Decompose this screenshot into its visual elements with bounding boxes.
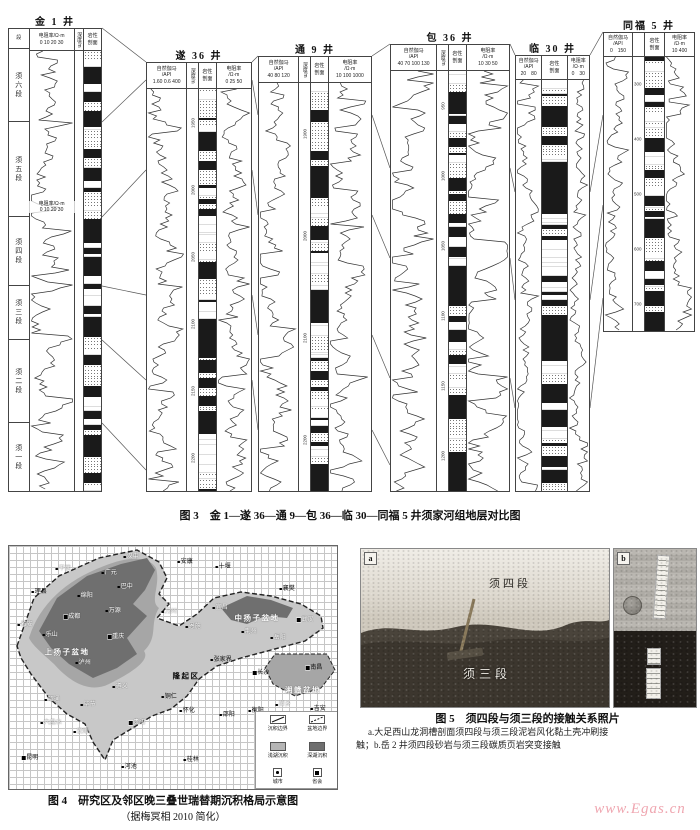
lith-segment xyxy=(84,118,101,127)
log-curve xyxy=(329,83,371,491)
lith-segment xyxy=(84,296,101,306)
well-jin1: 金 1 井 段 须六段 须五段 须四段 须三段 须二段 须一段 电阻率/Ω·m xyxy=(8,28,102,492)
lith-segment xyxy=(645,228,664,238)
lith-segment xyxy=(199,455,216,465)
lith-segment xyxy=(449,459,466,469)
map-label: 河池 xyxy=(121,764,137,770)
depth-label: 2150 xyxy=(190,385,195,395)
well-title: 金 1 井 xyxy=(0,13,111,28)
lith-segment xyxy=(84,234,101,243)
lith-segment xyxy=(449,227,466,237)
depth-label: 600 xyxy=(634,246,642,251)
lith-segment xyxy=(542,106,566,115)
depth-header: 深度/m xyxy=(187,63,198,89)
depth-label: 1050 xyxy=(440,241,445,251)
lith-segment xyxy=(449,259,466,266)
lith-segment xyxy=(199,302,216,312)
lith-segment xyxy=(199,188,216,196)
lith-segment xyxy=(542,446,566,456)
lith-segment xyxy=(542,196,566,204)
lithology-track: 岩性剖面 xyxy=(644,33,664,331)
lith-segment xyxy=(449,170,466,178)
lith-segment xyxy=(311,179,328,188)
member-row: 须四段 xyxy=(9,216,29,285)
depth-label: 1200 xyxy=(440,451,445,461)
lith-header: 岩性剖面 xyxy=(645,33,664,57)
depth-label: 2100 xyxy=(190,318,195,328)
lith-segment xyxy=(311,409,328,418)
map-label: 中扬子盆地 xyxy=(235,614,280,622)
city-marker xyxy=(279,588,282,591)
lith-segment xyxy=(84,219,101,229)
city-marker xyxy=(105,610,108,613)
lith-segment xyxy=(449,201,466,209)
lith-segment xyxy=(311,122,328,129)
lithology-track: 岩性剖面 xyxy=(541,56,566,491)
lith-segment xyxy=(311,134,328,141)
lithology-track: 岩性剖面 xyxy=(198,63,216,491)
map-legend: 沉积边界 盆地边界 浅湖沉积 深湖沉积 xyxy=(255,711,338,789)
legend-item: 盆地边界 xyxy=(307,715,327,732)
lithology-track: 岩性剖面 xyxy=(310,57,328,491)
log-curve xyxy=(665,57,693,331)
lith-segment xyxy=(645,63,664,72)
lith-segment xyxy=(84,102,101,109)
lith-segment xyxy=(542,431,566,439)
log-curve xyxy=(259,83,297,491)
lith-segment xyxy=(199,225,216,233)
member-header: 段 xyxy=(9,29,29,49)
depth-label: 1900 xyxy=(302,129,307,139)
lith-segment xyxy=(645,79,664,88)
lith-segment xyxy=(84,149,101,156)
lith-segment xyxy=(199,411,216,420)
city-marker xyxy=(183,759,186,762)
depth-label: 950 xyxy=(440,102,445,110)
resistivity-track: 电阻率/Ω·m0 25 50 xyxy=(216,63,251,491)
lith-segment xyxy=(645,261,664,271)
lith-segment xyxy=(84,76,101,84)
map-label: 南昌 xyxy=(306,665,323,671)
lith-segment xyxy=(645,187,664,196)
city-marker xyxy=(40,722,43,725)
log-curve xyxy=(604,57,630,331)
map-label: 理县 xyxy=(31,589,47,595)
capital-marker xyxy=(306,666,310,670)
lith-segment xyxy=(449,404,466,412)
depth-ticks: 195020002050210021502200 xyxy=(187,89,198,491)
capital-marker xyxy=(22,756,26,760)
lith-segment xyxy=(449,419,466,427)
lith-segment xyxy=(84,440,101,448)
lith-segment xyxy=(84,306,101,314)
depth-track: 深度/m 95010001050110011501200 xyxy=(436,45,448,491)
lith-segment xyxy=(84,377,101,386)
lith-segment xyxy=(645,178,664,187)
city-marker xyxy=(77,595,80,598)
depth-ticks: 1900200021002200 xyxy=(299,83,310,491)
city-marker xyxy=(101,572,104,575)
solid-boundary-symbol xyxy=(270,715,286,724)
lith-segment xyxy=(645,291,664,301)
lith-segment xyxy=(311,218,328,226)
lith-segment xyxy=(84,211,101,219)
lith-segment xyxy=(449,247,466,257)
resistivity-track: 电阻率/Ω·m 0 10 20 30 电阻率/Ω·m 0 10 20 30 xyxy=(29,29,74,491)
lith-segment xyxy=(199,445,216,455)
map-label: 恩施 xyxy=(185,624,201,630)
lith-segment xyxy=(199,329,216,338)
map-label: 桂林 xyxy=(183,757,199,763)
mid-scale-label: 电阻率/Ω·m 0 10 20 30 xyxy=(28,201,76,213)
track-header: 电阻率/Ω·m10 100 1000 xyxy=(329,57,371,83)
well-tongfu5: 同福 5 井 自然伽马/API0 150 300400500600700 岩性剖… xyxy=(603,32,695,332)
map-label: 湘赣盆地 xyxy=(285,686,321,694)
lith-segment xyxy=(542,410,566,419)
lith-segment xyxy=(84,448,101,457)
resistivity-track: 电阻率/Ω·m10 30 50 xyxy=(466,45,509,491)
lith-segment xyxy=(84,386,101,393)
lith-segment xyxy=(449,275,466,284)
lith-segment xyxy=(645,312,664,322)
lith-segment xyxy=(311,326,328,336)
lith-segment xyxy=(449,284,466,292)
city-marker xyxy=(17,624,20,627)
figure5-note-line1: a.大足西山龙洞槽剖面须四段与须三段泥岩风化黏土壳冲刷接 xyxy=(368,726,698,739)
lith-segment xyxy=(84,355,101,365)
lith-segment xyxy=(199,366,216,373)
gamma-track: 自然伽马/API20 80 xyxy=(516,56,541,491)
depth-track: 深度/m 1900200021002200 xyxy=(298,57,310,491)
deep-lake-swatch xyxy=(309,742,325,751)
track-header: 自然伽马/API1.60 0.6 400 xyxy=(147,63,186,89)
lithology-column xyxy=(84,51,101,491)
lith-segment xyxy=(311,83,328,92)
lith-segment xyxy=(449,138,466,147)
lith-segment xyxy=(84,337,101,347)
lith-segment xyxy=(199,465,216,473)
lith-segment xyxy=(311,474,328,483)
shallow-lake-swatch xyxy=(270,742,286,751)
lith-segment xyxy=(542,204,566,214)
lith-segment xyxy=(542,229,566,236)
lith-segment xyxy=(542,343,566,352)
city-marker xyxy=(161,611,164,614)
gamma-track: 自然伽马/API40 70 100 130 xyxy=(391,45,436,491)
lith-header: 岩性剖面 xyxy=(449,45,466,71)
depth-label: 1000 xyxy=(440,171,445,181)
well-sui36: 遂 36 井 自然伽马/API1.60 0.6 400 深度/m 1950200… xyxy=(146,62,252,492)
lithology-column xyxy=(542,80,566,491)
map-label: 武汉 xyxy=(297,617,314,623)
log-curve xyxy=(568,80,589,491)
lith-segment xyxy=(449,292,466,300)
city-marker xyxy=(42,634,45,637)
lith-header: 岩性剖面 xyxy=(542,56,566,80)
map-label: 张家界 xyxy=(210,657,232,663)
lith-segment xyxy=(311,141,328,151)
watermark: www.Egas.cn xyxy=(584,801,696,818)
lith-segment xyxy=(645,95,664,102)
lith-segment xyxy=(311,380,328,387)
depth-label: 2200 xyxy=(190,452,195,462)
lith-segment xyxy=(311,336,328,345)
depth-ticks: 300400500600700 xyxy=(633,57,644,331)
lith-segment xyxy=(645,88,664,95)
gamma-track: 自然伽马/API0 150 xyxy=(604,33,632,331)
lith-segment xyxy=(449,333,466,342)
lith-segment xyxy=(199,319,216,329)
city-marker xyxy=(121,766,124,769)
lith-segment xyxy=(449,471,466,481)
lith-segment xyxy=(542,403,566,410)
lith-segment xyxy=(645,72,664,79)
lith-header: 岩性剖面 xyxy=(311,57,328,83)
lith-segment xyxy=(311,115,328,122)
lith-segment xyxy=(199,176,216,185)
lith-segment xyxy=(199,216,216,225)
lith-segment xyxy=(542,170,566,180)
lith-segment xyxy=(84,289,101,296)
city-marker xyxy=(177,561,180,564)
lith-segment xyxy=(449,342,466,350)
lith-header: 岩性剖面 xyxy=(84,29,101,51)
city-marker xyxy=(73,731,76,734)
legend-item: 城市 xyxy=(273,768,283,785)
city-marker xyxy=(310,708,313,711)
well-bao36: 包 36 井 自然伽马/API40 70 100 130 深度/m 950100… xyxy=(390,44,510,492)
well-title: 通 9 井 xyxy=(249,41,381,56)
lith-segment xyxy=(84,60,101,67)
lith-segment xyxy=(199,426,216,434)
map-label: 遵义 xyxy=(112,684,128,690)
lith-segment xyxy=(311,92,328,100)
track-header: 电阻率/Ω·m10 400 xyxy=(665,33,694,57)
city-marker xyxy=(215,566,218,569)
lith-segment xyxy=(311,151,328,160)
log-curve xyxy=(391,71,435,491)
lith-segment xyxy=(449,388,466,395)
legend-item: 深湖沉积 xyxy=(307,742,327,759)
map-label: 铜仁 xyxy=(161,694,177,700)
map-label: 毕节 xyxy=(80,702,96,708)
lith-segment xyxy=(311,433,328,442)
lith-segment xyxy=(84,84,101,92)
city-marker xyxy=(210,659,213,662)
figure5-note-line2: 触；b.岳 2 井须四段砂岩与须三段碳质页岩突变接触 xyxy=(356,739,696,752)
depth-ticks xyxy=(75,51,84,491)
lith-segment xyxy=(311,400,328,407)
lith-segment xyxy=(199,93,216,100)
lith-segment xyxy=(645,330,664,331)
lith-segment xyxy=(311,371,328,380)
city-marker xyxy=(112,686,115,689)
lith-segment xyxy=(84,67,101,76)
depth-label: 2000 xyxy=(190,184,195,194)
figure4-caption-sub: （据梅冥相 2010 简化） xyxy=(0,808,346,823)
depth-header: 深度/m xyxy=(299,57,310,83)
lith-segment xyxy=(311,171,328,179)
member-column: 段 须六段 须五段 须四段 须三段 须二段 须一段 xyxy=(9,29,29,491)
lith-segment xyxy=(199,286,216,295)
lith-segment xyxy=(449,412,466,419)
city-marker xyxy=(270,637,273,640)
map-label: 巴中 xyxy=(117,584,133,590)
map-label: 汉中 xyxy=(123,554,139,560)
lith-segment xyxy=(449,92,466,101)
lith-segment xyxy=(84,181,101,188)
lith-segment xyxy=(311,313,328,321)
lith-segment xyxy=(84,487,101,491)
city-marker xyxy=(80,704,83,707)
lith-segment xyxy=(311,464,328,474)
lith-segment xyxy=(84,130,101,140)
figure5-caption: 图 5 须四段与须三段的接触关系照片 xyxy=(355,710,700,726)
resistivity-track: 电阻率/Ω·m0 30 xyxy=(567,56,589,491)
lith-segment xyxy=(84,192,101,201)
lith-segment xyxy=(84,158,101,166)
lith-segment xyxy=(199,312,216,319)
lith-segment xyxy=(199,235,216,243)
track-header: 电阻率/Ω·m 0 10 20 30 xyxy=(30,29,74,51)
member-row: 须三段 xyxy=(9,285,29,339)
lith-segment xyxy=(449,355,466,364)
track-header: 电阻率/Ω·m10 30 50 xyxy=(467,45,509,71)
lith-segment xyxy=(449,214,466,223)
city-marker xyxy=(241,631,244,634)
lith-segment xyxy=(311,198,328,208)
lith-segment xyxy=(199,279,216,286)
city-marker xyxy=(55,568,58,571)
city-marker xyxy=(212,607,215,610)
city-marker xyxy=(75,662,78,665)
well-title: 遂 36 井 xyxy=(137,47,261,62)
lith-segment xyxy=(199,209,216,216)
city-marker xyxy=(161,696,164,699)
lith-segment xyxy=(449,367,466,374)
depth-header: 深度/m xyxy=(75,29,84,51)
depth-ticks: 95010001050110011501200 xyxy=(437,71,448,491)
lith-segment xyxy=(84,465,101,473)
lith-segment xyxy=(311,100,328,110)
lith-segment xyxy=(542,80,566,89)
lith-segment xyxy=(449,84,466,92)
lithology-column xyxy=(645,57,664,331)
track-header: 自然伽马/API40 80 120 xyxy=(259,57,298,83)
lith-segment xyxy=(311,361,328,371)
map-label: 广元 xyxy=(101,570,117,576)
lith-segment xyxy=(645,170,664,178)
member-row: 须五段 xyxy=(9,121,29,216)
capital-marker xyxy=(297,618,301,622)
lith-segment xyxy=(84,369,101,377)
track-header: 电阻率/Ω·m0 30 xyxy=(568,56,589,80)
outcrop-photo-a: a 须四段 须三段 xyxy=(360,548,610,708)
resistivity-track: 电阻率/Ω·m10 400 xyxy=(664,33,694,331)
lith-segment xyxy=(199,106,216,115)
depth-label: 1100 xyxy=(440,311,445,321)
photo-texture xyxy=(614,549,696,707)
lith-segment xyxy=(311,450,328,457)
figure3-caption: 图 3 金 1—遂 36—通 9—包 36—临 30—同福 5 井须家河组地层对… xyxy=(0,507,700,523)
lith-segment xyxy=(311,483,328,491)
lith-segment xyxy=(449,395,466,404)
gamma-track: 自然伽马/API1.60 0.6 400 xyxy=(147,63,186,491)
legend-item: 省会 xyxy=(312,768,322,785)
member-row: 须二段 xyxy=(9,339,29,422)
member-row: 须六段 xyxy=(9,49,29,121)
capital-marker xyxy=(129,721,133,725)
depth-label: 2000 xyxy=(302,231,307,241)
lithology-track: 岩性剖面 xyxy=(83,29,101,491)
track-header: 自然伽马/API20 80 xyxy=(516,56,541,80)
lith-segment xyxy=(542,393,566,403)
map-label: 十堰 xyxy=(215,564,231,570)
depth-label: 700 xyxy=(634,301,642,306)
lith-segment xyxy=(542,136,566,145)
lith-segment xyxy=(84,276,101,284)
lith-segment xyxy=(311,290,328,300)
track-header: 自然伽马/API40 70 100 130 xyxy=(391,45,436,71)
lith-segment xyxy=(645,114,664,122)
map-label: 绵阳 xyxy=(77,593,93,599)
lith-segment xyxy=(542,419,566,427)
lith-segment xyxy=(449,178,466,187)
map-label: 重庆 xyxy=(108,634,125,640)
lith-segment xyxy=(84,51,101,60)
lith-segment xyxy=(542,180,566,190)
lith-segment xyxy=(542,485,566,491)
lith-segment xyxy=(542,377,566,384)
lith-segment xyxy=(542,476,566,483)
lith-segment xyxy=(449,75,466,84)
lith-segment xyxy=(645,219,664,228)
lith-segment xyxy=(542,456,566,464)
capital-marker xyxy=(64,615,68,619)
map-label: 萍乡 xyxy=(275,702,291,708)
lith-segment xyxy=(199,154,216,161)
lith-segment xyxy=(199,396,216,406)
lith-segment xyxy=(542,267,566,276)
map-label: 昭通 xyxy=(44,697,60,703)
lithology-column xyxy=(311,83,328,491)
dashed-boundary-symbol xyxy=(309,715,325,724)
figure4-map: 汉中平武广元巴中安康十堰襄樊理县绵阳万源万州成都雅安乐山重庆上扬子盆地泸州宜昌中… xyxy=(8,545,338,790)
depth-label: 1950 xyxy=(190,117,195,127)
lithology-column xyxy=(199,89,216,491)
lith-segment xyxy=(84,111,101,118)
map-label: 六盘水 xyxy=(40,720,62,726)
map-label: 襄樊 xyxy=(279,586,295,592)
map-label: 雅安 xyxy=(17,622,33,628)
depth-label: 300 xyxy=(634,82,642,87)
depth-header xyxy=(633,33,644,57)
log-curve xyxy=(467,71,509,491)
lith-segment xyxy=(449,194,466,201)
photo-a-tag: a xyxy=(364,552,377,565)
lith-segment xyxy=(449,306,466,316)
lith-segment xyxy=(311,274,328,282)
city-marker xyxy=(219,714,222,717)
lith-segment xyxy=(645,157,664,165)
photo-b-tag: b xyxy=(617,552,630,565)
map-label: 乐山 xyxy=(42,632,58,638)
lith-segment xyxy=(449,266,466,275)
lith-segment xyxy=(542,250,566,258)
lith-segment xyxy=(199,120,216,127)
map-label: 成都 xyxy=(64,614,81,620)
depth-label: 2100 xyxy=(302,333,307,343)
